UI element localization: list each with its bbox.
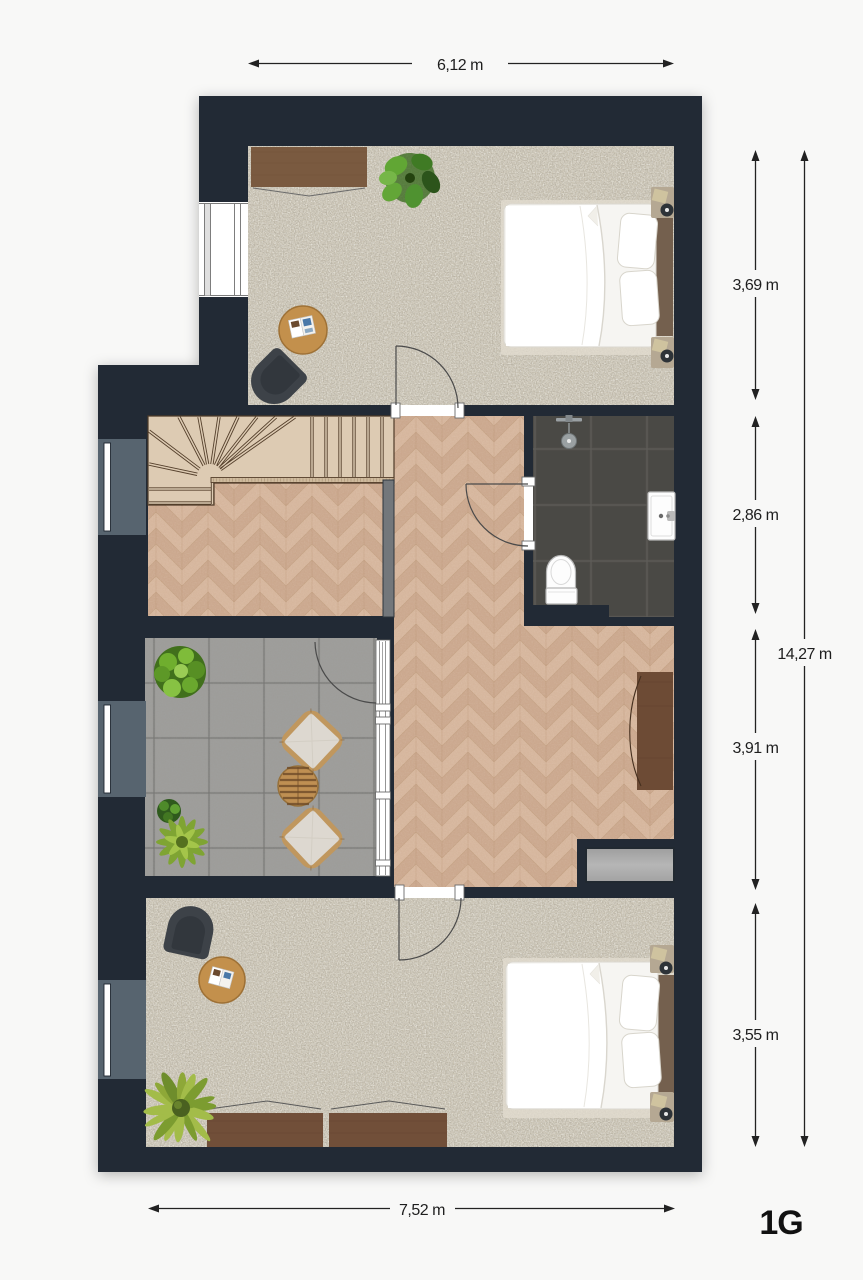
svg-text:3,91 m: 3,91 m [733,740,779,757]
svg-text:7,52 m: 7,52 m [399,1202,445,1219]
svg-text:2,86 m: 2,86 m [733,507,779,524]
svg-text:6,12 m: 6,12 m [437,57,483,74]
svg-text:14,27 m: 14,27 m [777,646,831,663]
svg-text:3,69 m: 3,69 m [733,277,779,294]
svg-text:1G: 1G [759,1204,802,1242]
svg-text:3,55 m: 3,55 m [733,1027,779,1044]
